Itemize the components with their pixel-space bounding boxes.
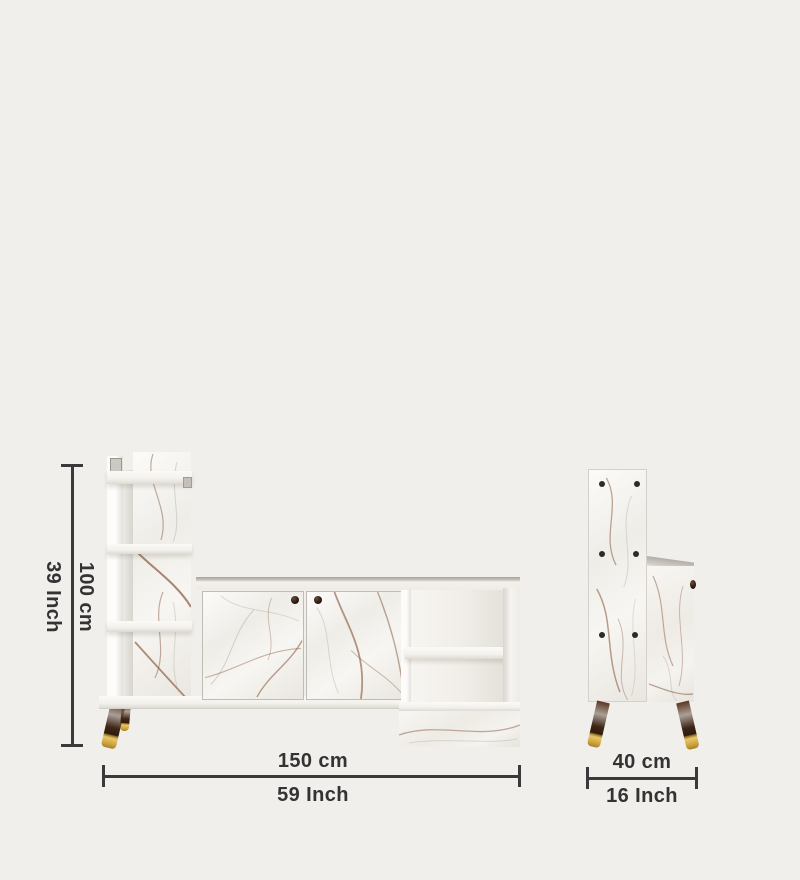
cam-screw-icon <box>599 632 605 638</box>
height-dimension-cap-bottom <box>61 744 83 747</box>
cabinet-door-right <box>306 591 408 700</box>
tower-shelf-1 <box>107 544 192 554</box>
center-divider-panel <box>401 590 411 702</box>
open-middle-shelf <box>405 647 507 659</box>
side-left-leg <box>587 701 610 749</box>
width-label-cm: 150 cm <box>213 750 413 772</box>
width-dimension-cap-right <box>518 765 521 787</box>
product-dimension-diagram: 100 cm 39 Inch 150 cm 59 Inch 40 cm 16 I… <box>0 0 800 880</box>
depth-label-cm: 40 cm <box>562 751 722 773</box>
open-shelf-back <box>411 590 503 702</box>
cam-screw-icon <box>632 632 638 638</box>
side-tall-marble-panel <box>588 469 647 702</box>
width-label-inch: 59 Inch <box>213 784 413 806</box>
tower-left-post <box>107 456 123 708</box>
connector-bracket-icon <box>183 477 192 488</box>
side-door-knob <box>690 580 696 589</box>
depth-label-inch: 16 Inch <box>562 785 722 807</box>
cam-screw-icon <box>599 481 605 487</box>
side-view <box>560 0 800 880</box>
side-cabinet-body <box>647 566 694 702</box>
cam-screw-icon <box>633 551 639 557</box>
cam-screw-icon <box>599 551 605 557</box>
width-dimension-line <box>103 775 521 778</box>
depth-dimension-line <box>587 777 697 780</box>
bottom-box-edge <box>399 702 520 711</box>
height-label-inch: 39 Inch <box>42 542 64 652</box>
bottom-box-front <box>399 711 520 747</box>
height-dimension-line <box>71 466 74 747</box>
width-dimension-cap-left <box>102 765 105 787</box>
cabinet-door-left <box>202 591 304 700</box>
tower-back-marble-panel <box>133 452 191 700</box>
height-label-cm: 100 cm <box>75 542 97 652</box>
tower-shelf-2 <box>107 621 192 632</box>
cam-screw-icon <box>634 481 640 487</box>
door-knob-right <box>314 596 322 604</box>
height-dimension-cap-top <box>61 464 83 467</box>
tower-inner-side <box>123 470 133 698</box>
tower-top-shelf <box>107 471 192 484</box>
door-knob-left <box>291 596 299 604</box>
front-view <box>0 0 560 880</box>
cabinet-top-slab <box>196 577 520 590</box>
side-right-leg <box>676 701 699 751</box>
